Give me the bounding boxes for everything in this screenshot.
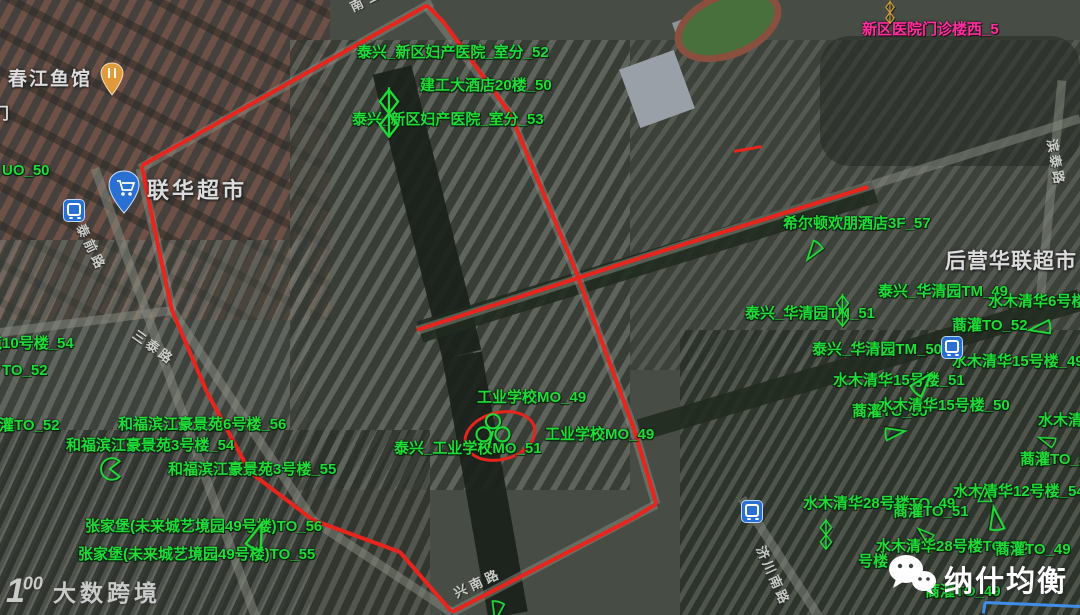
site-label: 水木清华12号楼_54 xyxy=(953,484,1080,501)
site-label: 工业学校MO_49 xyxy=(477,390,586,407)
site-label: 水木清华15号楼_49 xyxy=(952,354,1080,371)
site-label: 苑10号楼_54 xyxy=(0,336,74,353)
poi-label: 后营华联超市 xyxy=(945,250,1077,273)
site-label-pink: 新区医院门诊楼西_5 xyxy=(862,22,999,39)
antenna-icon xyxy=(376,86,402,138)
dashu-logo-icon: 100 xyxy=(6,574,43,608)
poi-label: 门 xyxy=(0,106,9,124)
site-label: 水木清华15号楼_50 xyxy=(878,398,1010,415)
antenna-icon xyxy=(818,518,834,550)
site-label: 工业学校MO_49 xyxy=(545,427,654,444)
site-label: 和福滨江豪景苑3号楼_54 xyxy=(66,438,234,455)
transit-station-icon[interactable] xyxy=(941,336,963,359)
clover-icon xyxy=(473,412,513,452)
site-label: 水木清华15号楼_51 xyxy=(833,373,965,390)
watermark-text: 大数跨境 xyxy=(53,574,161,608)
antenna-icon xyxy=(884,0,896,24)
site-label: 张家堡(未来城艺境园49号楼)TO_55 xyxy=(78,547,315,564)
poi-label: 春江鱼馆 xyxy=(8,70,92,91)
site-label: 蔏灌TO_52 xyxy=(0,418,60,435)
pacman-icon xyxy=(98,456,124,482)
sector-icon xyxy=(906,368,941,403)
watermark-bottom-left: 100 大数跨境 xyxy=(6,574,161,608)
site-label: 泰兴_华清园TM_51 xyxy=(745,306,875,323)
watermark-text: 纳什均衡 xyxy=(944,558,1068,600)
site-label: 水木清华6号楼_49 xyxy=(988,294,1080,311)
site-label: 希尔顿欢朋酒店3F_57 xyxy=(783,216,931,233)
site-label: 蔏灌TO_53 xyxy=(1020,452,1080,469)
sector-icon xyxy=(914,522,937,545)
site-label: 和福滨江豪景苑6号楼_56 xyxy=(118,417,286,434)
poi-label: 联华超市 xyxy=(147,179,247,203)
site-label: 泰兴_华清园TM_50 xyxy=(812,342,942,359)
site-label: 和福滨江豪景苑3号楼_55 xyxy=(168,462,336,479)
site-label: 蔏灌TO_52 xyxy=(952,318,1028,335)
site-label: 蔏灌TO_51 xyxy=(893,504,969,521)
site-label: 泰兴_新区妇产医院_室分_52 xyxy=(357,45,549,62)
site-label: 建工大酒店20楼_50 xyxy=(420,78,552,95)
site-label: 泰兴_工业学校MO_51 xyxy=(394,441,542,458)
transit-station-icon[interactable] xyxy=(741,500,763,523)
site-label: UO_50 xyxy=(2,163,50,180)
site-label: 张家堡(未来城艺境园49号楼)TO_56 xyxy=(85,519,322,536)
supermarket-cart-pin[interactable] xyxy=(108,170,140,214)
site-label: TO_52 xyxy=(2,363,48,380)
site-label: 水木清华 xyxy=(1038,413,1080,430)
transit-station-icon[interactable] xyxy=(63,199,85,222)
watermark-bottom-right: 纳什均衡 xyxy=(886,550,1068,607)
wechat-icon xyxy=(886,550,938,607)
site-label: 号楼 xyxy=(858,554,888,571)
antenna-icon xyxy=(834,293,851,327)
restaurant-pin[interactable] xyxy=(100,62,124,96)
satellite-map[interactable]: 泰兴_新区妇产医院_室分_52建工大酒店20楼_50泰兴_新区妇产医院_室分_5… xyxy=(0,0,1080,615)
